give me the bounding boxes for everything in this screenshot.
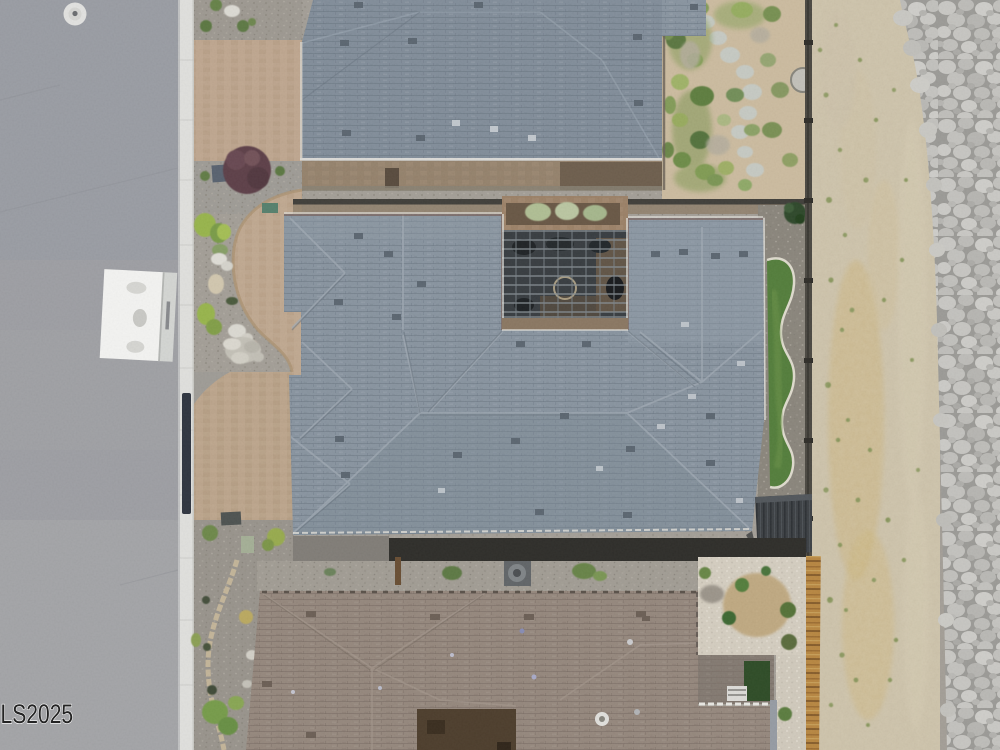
svg-text:MLS2025: MLS2025 — [0, 700, 73, 730]
